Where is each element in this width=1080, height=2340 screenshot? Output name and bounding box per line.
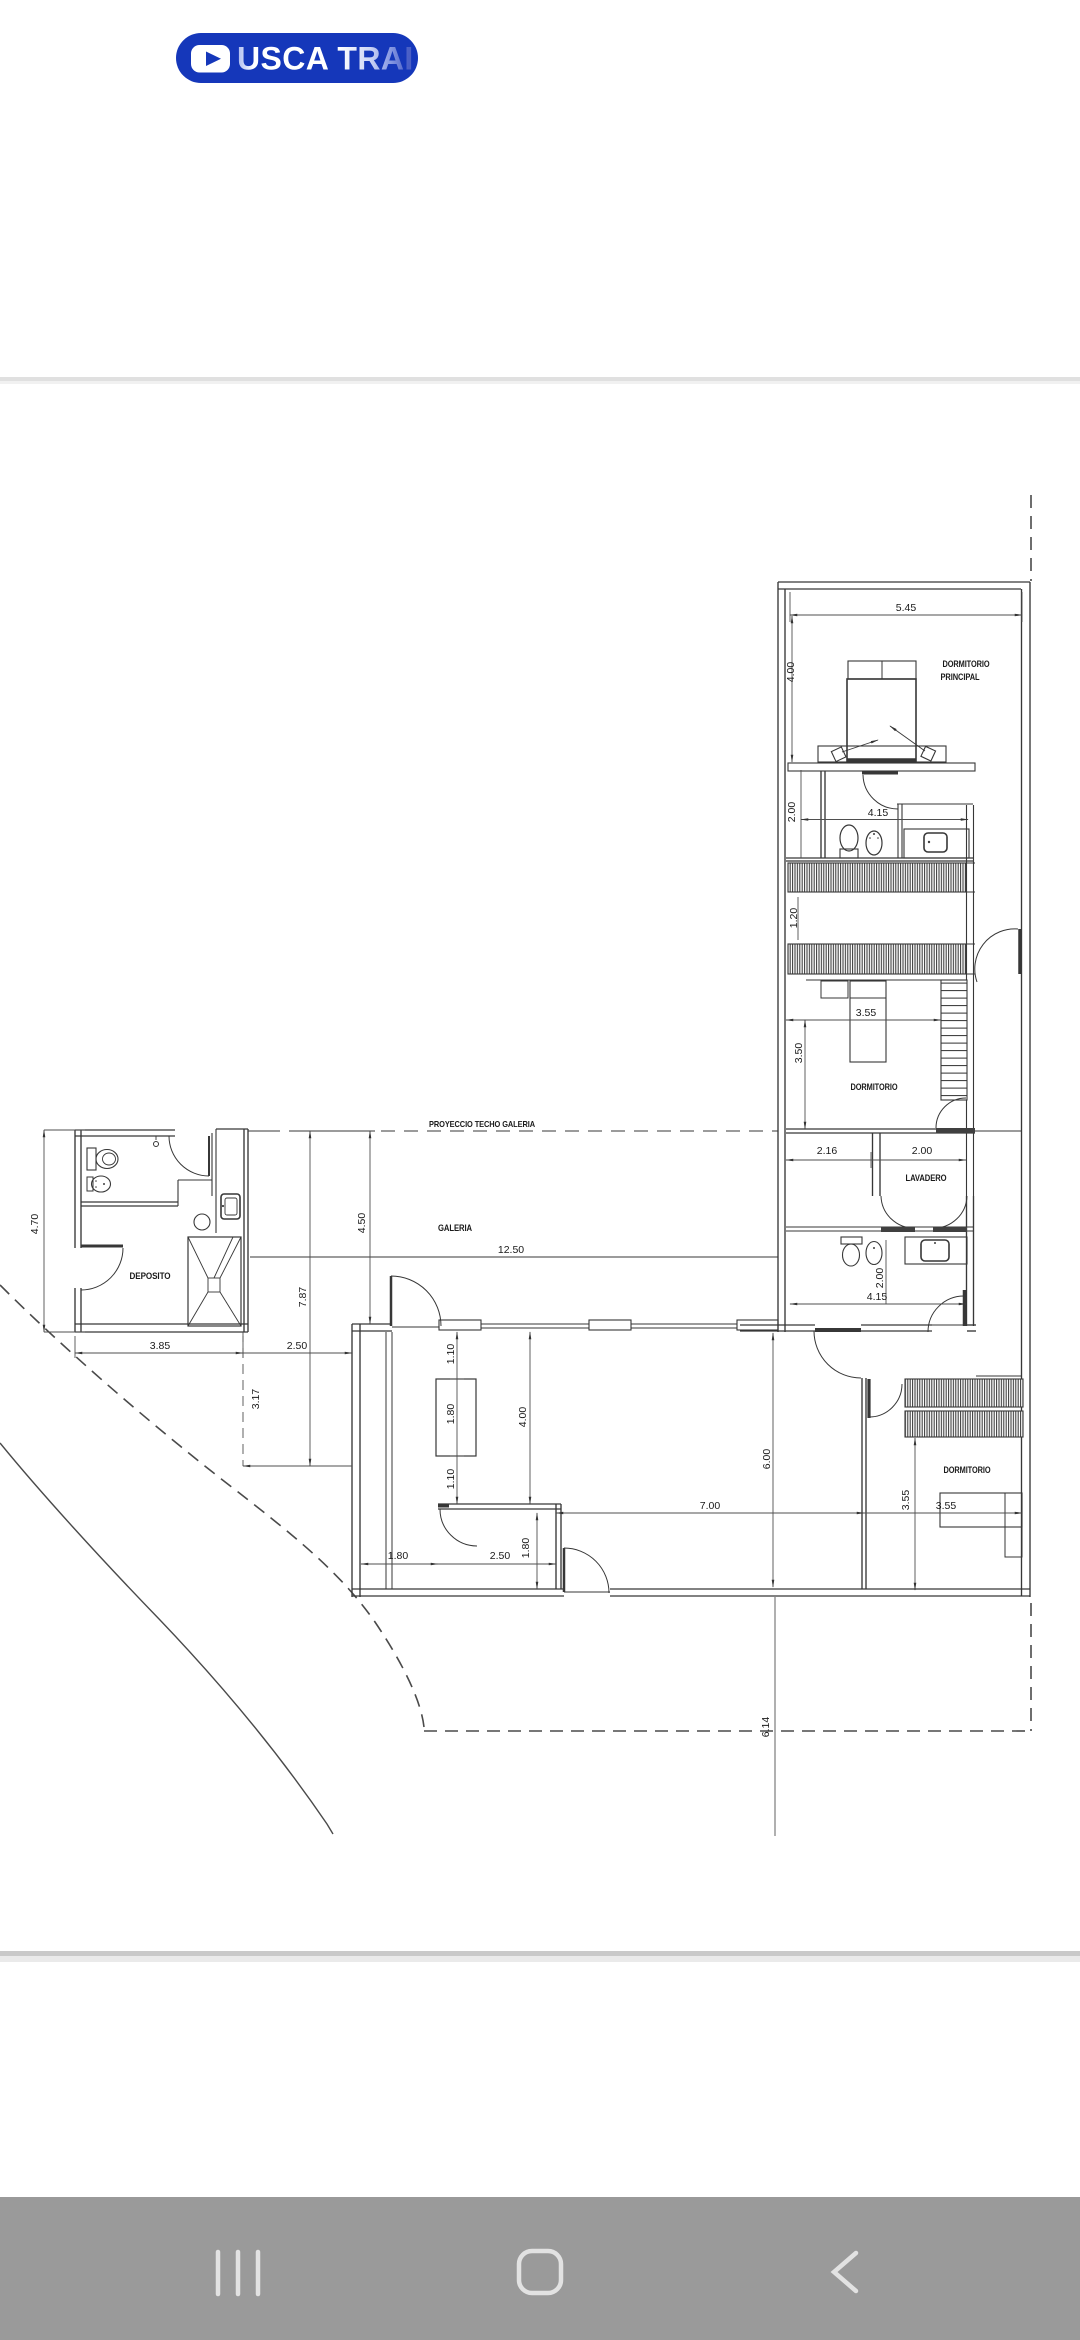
svg-text:LAVADERO: LAVADERO (906, 1173, 947, 1183)
svg-text:DORMITORIO: DORMITORIO (851, 1082, 898, 1092)
svg-text:PROYECCIO TECHO GALERIA: PROYECCIO TECHO GALERIA (429, 1119, 535, 1129)
svg-text:2.00: 2.00 (912, 1145, 933, 1157)
svg-text:2.50: 2.50 (490, 1550, 511, 1562)
svg-text:3.17: 3.17 (250, 1389, 262, 1410)
svg-text:3.55: 3.55 (900, 1490, 912, 1511)
svg-text:12.50: 12.50 (498, 1244, 524, 1256)
svg-text:1.80: 1.80 (388, 1550, 409, 1562)
svg-text:4.00: 4.00 (517, 1407, 529, 1428)
svg-text:3.85: 3.85 (150, 1340, 171, 1352)
svg-text:2.00: 2.00 (874, 1268, 886, 1289)
svg-text:2.50: 2.50 (287, 1340, 308, 1352)
svg-text:1.20: 1.20 (788, 908, 800, 929)
svg-text:4.50: 4.50 (356, 1213, 368, 1234)
svg-text:6.14: 6.14 (760, 1717, 772, 1738)
svg-text:GALERIA: GALERIA (438, 1223, 473, 1233)
svg-text:4.70: 4.70 (29, 1214, 41, 1235)
svg-text:DORMITORIO: DORMITORIO (944, 1465, 991, 1475)
svg-text:DORMITORIO: DORMITORIO (943, 659, 990, 669)
svg-text:1.80: 1.80 (520, 1538, 532, 1559)
svg-text:1.10: 1.10 (445, 1469, 457, 1490)
svg-text:1.80: 1.80 (445, 1404, 457, 1425)
svg-text:USCA TRAI: USCA TRAI (237, 41, 414, 77)
svg-text:DEPOSITO: DEPOSITO (130, 1271, 171, 1281)
svg-text:3.55: 3.55 (856, 1007, 877, 1019)
svg-text:2.00: 2.00 (786, 802, 798, 823)
svg-text:6.00: 6.00 (761, 1449, 773, 1470)
svg-text:PRINCIPAL: PRINCIPAL (941, 672, 980, 682)
svg-text:4.15: 4.15 (867, 1291, 888, 1303)
svg-text:5.45: 5.45 (896, 602, 917, 614)
svg-text:4.00: 4.00 (785, 662, 797, 683)
svg-text:7.00: 7.00 (700, 1500, 721, 1512)
svg-text:1.10: 1.10 (445, 1344, 457, 1365)
svg-text:2.16: 2.16 (817, 1145, 838, 1157)
svg-text:4.15: 4.15 (868, 807, 889, 819)
svg-text:3.50: 3.50 (793, 1043, 805, 1064)
svg-text:7.87: 7.87 (297, 1287, 309, 1308)
svg-text:3.55: 3.55 (936, 1500, 957, 1512)
